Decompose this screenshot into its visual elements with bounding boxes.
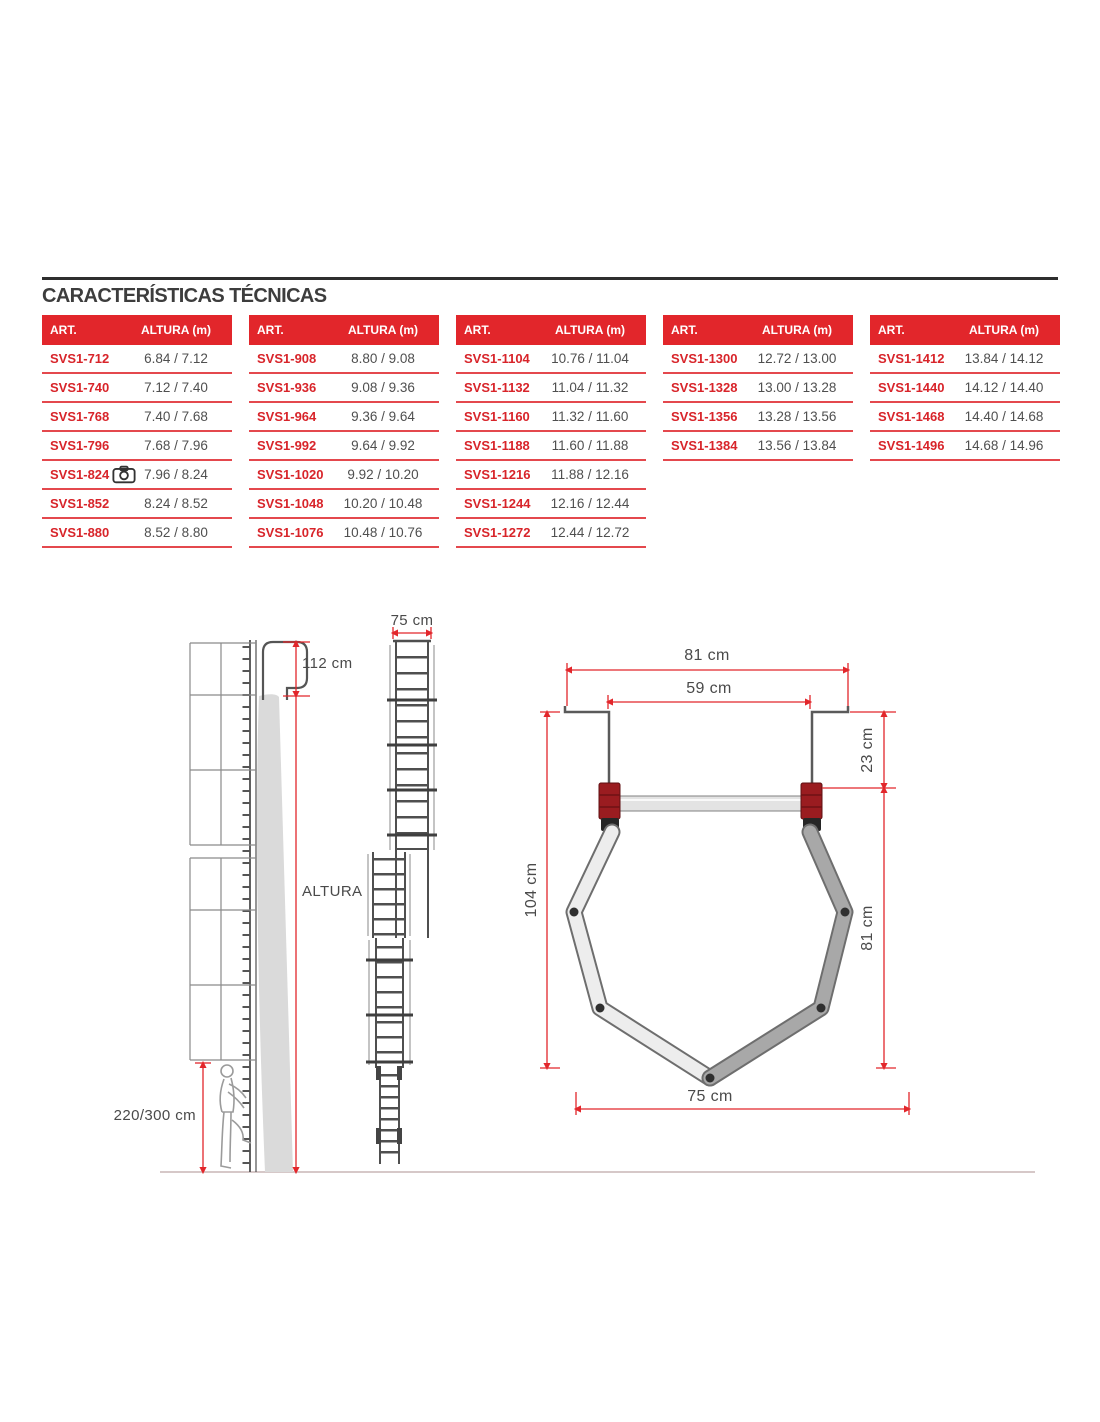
dim-label-75cm-bottom: 75 cm	[687, 1088, 733, 1105]
datasheet-page: CARACTERÍSTICAS TÉCNICAS ART. ALTURA (m)…	[0, 0, 1100, 1422]
table-header: ART. ALTURA (m)	[456, 315, 646, 345]
altura-cell: 10.76 / 11.04	[534, 351, 646, 366]
art-cell: SVS1-1048	[249, 496, 327, 511]
altura-cell: 14.40 / 14.68	[948, 409, 1060, 424]
dim-label-81cm-outer: 81 cm	[684, 647, 730, 664]
table-row: SVS1-7407.12 / 7.40	[42, 374, 232, 403]
wall-brackets	[565, 706, 848, 788]
col-header-altura: ALTURA (m)	[120, 323, 232, 337]
dim-label-81cm-height: 81 cm	[859, 905, 876, 951]
dim-label-220-300cm: 220/300 cm	[114, 1107, 196, 1124]
altura-cell: 9.08 / 9.36	[327, 380, 439, 395]
col-header-art: ART.	[456, 323, 534, 337]
table-row: SVS1-8528.24 / 8.52	[42, 490, 232, 519]
dimensions-front-view: 75 cm	[391, 612, 434, 639]
side-view-diagram: 112 cm ALTURA 220/300 cm	[114, 640, 363, 1172]
table-row: SVS1-107610.48 / 10.76	[249, 519, 439, 548]
table-row: SVS1-8808.52 / 8.80	[42, 519, 232, 548]
art-cell: SVS1-824	[42, 467, 120, 482]
altura-cell: 8.52 / 8.80	[120, 525, 232, 540]
table-row: SVS1-9929.64 / 9.92	[249, 432, 439, 461]
altura-cell: 8.80 / 9.08	[327, 351, 439, 366]
table-body: SVS1-130012.72 / 13.00SVS1-132813.00 / 1…	[663, 345, 853, 461]
top-divider	[42, 277, 1058, 280]
dim-label-112cm: 112 cm	[302, 655, 352, 672]
table-row: SVS1-141213.84 / 14.12	[870, 345, 1060, 374]
table-row: SVS1-7126.84 / 7.12	[42, 345, 232, 374]
col-header-altura: ALTURA (m)	[534, 323, 646, 337]
art-cell: SVS1-768	[42, 409, 120, 424]
art-cell: SVS1-1300	[663, 351, 741, 366]
table-body: SVS1-141213.84 / 14.12SVS1-144014.12 / 1…	[870, 345, 1060, 461]
art-cell: SVS1-852	[42, 496, 120, 511]
altura-cell: 7.96 / 8.24	[120, 467, 232, 482]
table-header: ART. ALTURA (m)	[42, 315, 232, 345]
altura-cell: 10.20 / 10.48	[327, 496, 439, 511]
table-row: SVS1-110410.76 / 11.04	[456, 345, 646, 374]
technical-drawings: 112 cm ALTURA 220/300 cm 75 cm	[0, 600, 1100, 1222]
table-row: SVS1-130012.72 / 13.00	[663, 345, 853, 374]
altura-cell: 13.00 / 13.28	[741, 380, 853, 395]
art-cell: SVS1-1244	[456, 496, 534, 511]
ladder-rung-bar	[619, 796, 803, 811]
col-header-art: ART.	[249, 323, 327, 337]
altura-cell: 9.36 / 9.64	[327, 409, 439, 424]
table-row: SVS1-146814.40 / 14.68	[870, 403, 1060, 432]
spec-table-2: ART. ALTURA (m) SVS1-9088.80 / 9.08SVS1-…	[249, 315, 439, 548]
altura-cell: 12.72 / 13.00	[741, 351, 853, 366]
art-cell: SVS1-796	[42, 438, 120, 453]
camera-icon	[112, 465, 136, 484]
table-row: SVS1-144014.12 / 14.40	[870, 374, 1060, 403]
table-row: SVS1-116011.32 / 11.60	[456, 403, 646, 432]
dim-label-23cm: 23 cm	[859, 727, 876, 773]
col-header-altura: ALTURA (m)	[327, 323, 439, 337]
table-row: SVS1-7967.68 / 7.96	[42, 432, 232, 461]
table-row: SVS1-9369.08 / 9.36	[249, 374, 439, 403]
altura-cell: 13.84 / 14.12	[948, 351, 1060, 366]
altura-cell: 13.28 / 13.56	[741, 409, 853, 424]
art-cell: SVS1-992	[249, 438, 327, 453]
wall-shape	[257, 694, 293, 1172]
altura-cell: 13.56 / 13.84	[741, 438, 853, 453]
cage-hoop	[570, 832, 850, 1083]
art-cell: SVS1-1160	[456, 409, 534, 424]
altura-cell: 12.44 / 12.72	[534, 525, 646, 540]
art-cell: SVS1-1412	[870, 351, 948, 366]
art-cell: SVS1-740	[42, 380, 120, 395]
table-row: SVS1-104810.20 / 10.48	[249, 490, 439, 519]
art-cell: SVS1-880	[42, 525, 120, 540]
table-row: SVS1-10209.92 / 10.20	[249, 461, 439, 490]
col-header-art: ART.	[663, 323, 741, 337]
table-row: SVS1-9088.80 / 9.08	[249, 345, 439, 374]
altura-cell: 9.64 / 9.92	[327, 438, 439, 453]
art-cell: SVS1-1104	[456, 351, 534, 366]
col-header-altura: ALTURA (m)	[948, 323, 1060, 337]
altura-cell: 14.12 / 14.40	[948, 380, 1060, 395]
art-cell: SVS1-1272	[456, 525, 534, 540]
table-row: SVS1-118811.60 / 11.88	[456, 432, 646, 461]
art-cell: SVS1-1076	[249, 525, 327, 540]
person-figure	[220, 1065, 251, 1168]
art-cell: SVS1-1468	[870, 409, 948, 424]
art-cell: SVS1-908	[249, 351, 327, 366]
art-cell: SVS1-712	[42, 351, 120, 366]
cross-section-diagram: 81 cm 59 cm 104 cm 23 cm 81 cm 75 cm	[523, 647, 909, 1115]
table-row: SVS1-121611.88 / 12.16	[456, 461, 646, 490]
altura-cell: 11.88 / 12.16	[534, 467, 646, 482]
altura-cell: 6.84 / 7.12	[120, 351, 232, 366]
altura-cell: 9.92 / 10.20	[327, 467, 439, 482]
table-row: SVS1-8247.96 / 8.24	[42, 461, 232, 490]
altura-cell: 11.32 / 11.60	[534, 409, 646, 424]
dim-label-altura: ALTURA	[302, 883, 362, 900]
front-view-diagram: 75 cm	[366, 612, 437, 1164]
table-row: SVS1-132813.00 / 13.28	[663, 374, 853, 403]
table-row: SVS1-113211.04 / 11.32	[456, 374, 646, 403]
art-cell: SVS1-1356	[663, 409, 741, 424]
table-body: SVS1-9088.80 / 9.08SVS1-9369.08 / 9.36SV…	[249, 345, 439, 548]
altura-cell: 10.48 / 10.76	[327, 525, 439, 540]
dim-label-75cm-width: 75 cm	[391, 612, 434, 629]
dim-label-104cm: 104 cm	[523, 863, 540, 918]
art-cell: SVS1-936	[249, 380, 327, 395]
table-body: SVS1-7126.84 / 7.12SVS1-7407.12 / 7.40SV…	[42, 345, 232, 548]
art-cell: SVS1-1188	[456, 438, 534, 453]
art-cell: SVS1-964	[249, 409, 327, 424]
table-row: SVS1-124412.16 / 12.44	[456, 490, 646, 519]
altura-cell: 11.60 / 11.88	[534, 438, 646, 453]
exit-handrail	[263, 642, 307, 700]
ladder-side	[246, 640, 256, 1172]
table-header: ART. ALTURA (m)	[870, 315, 1060, 345]
art-cell: SVS1-1440	[870, 380, 948, 395]
col-header-art: ART.	[42, 323, 120, 337]
table-header: ART. ALTURA (m)	[249, 315, 439, 345]
dimensions-side-view: 112 cm ALTURA 220/300 cm	[114, 642, 363, 1172]
art-cell: SVS1-1496	[870, 438, 948, 453]
spec-table-5: ART. ALTURA (m) SVS1-141213.84 / 14.12SV…	[870, 315, 1060, 461]
table-header: ART. ALTURA (m)	[663, 315, 853, 345]
altura-cell: 7.12 / 7.40	[120, 380, 232, 395]
altura-cell: 7.40 / 7.68	[120, 409, 232, 424]
hoop-joints	[570, 908, 850, 1083]
table-row: SVS1-127212.44 / 12.72	[456, 519, 646, 548]
table-row: SVS1-9649.36 / 9.64	[249, 403, 439, 432]
spec-table-4: ART. ALTURA (m) SVS1-130012.72 / 13.00SV…	[663, 315, 853, 461]
art-cell: SVS1-1216	[456, 467, 534, 482]
ladder-front	[366, 641, 437, 1164]
art-cell: SVS1-1328	[663, 380, 741, 395]
table-row: SVS1-7687.40 / 7.68	[42, 403, 232, 432]
col-header-altura: ALTURA (m)	[741, 323, 853, 337]
dim-label-59cm: 59 cm	[686, 680, 732, 697]
art-cell: SVS1-1132	[456, 380, 534, 395]
altura-cell: 8.24 / 8.52	[120, 496, 232, 511]
table-row: SVS1-138413.56 / 13.84	[663, 432, 853, 461]
page-title: CARACTERÍSTICAS TÉCNICAS	[42, 285, 327, 308]
altura-cell: 11.04 / 11.32	[534, 380, 646, 395]
table-row: SVS1-135613.28 / 13.56	[663, 403, 853, 432]
col-header-art: ART.	[870, 323, 948, 337]
table-row: SVS1-149614.68 / 14.96	[870, 432, 1060, 461]
altura-cell: 14.68 / 14.96	[948, 438, 1060, 453]
art-cell: SVS1-1384	[663, 438, 741, 453]
spec-table-3: ART. ALTURA (m) SVS1-110410.76 / 11.04SV…	[456, 315, 646, 548]
spec-table-1: ART. ALTURA (m) SVS1-7126.84 / 7.12SVS1-…	[42, 315, 232, 548]
altura-cell: 7.68 / 7.96	[120, 438, 232, 453]
art-cell: SVS1-1020	[249, 467, 327, 482]
table-body: SVS1-110410.76 / 11.04SVS1-113211.04 / 1…	[456, 345, 646, 548]
altura-cell: 12.16 / 12.44	[534, 496, 646, 511]
